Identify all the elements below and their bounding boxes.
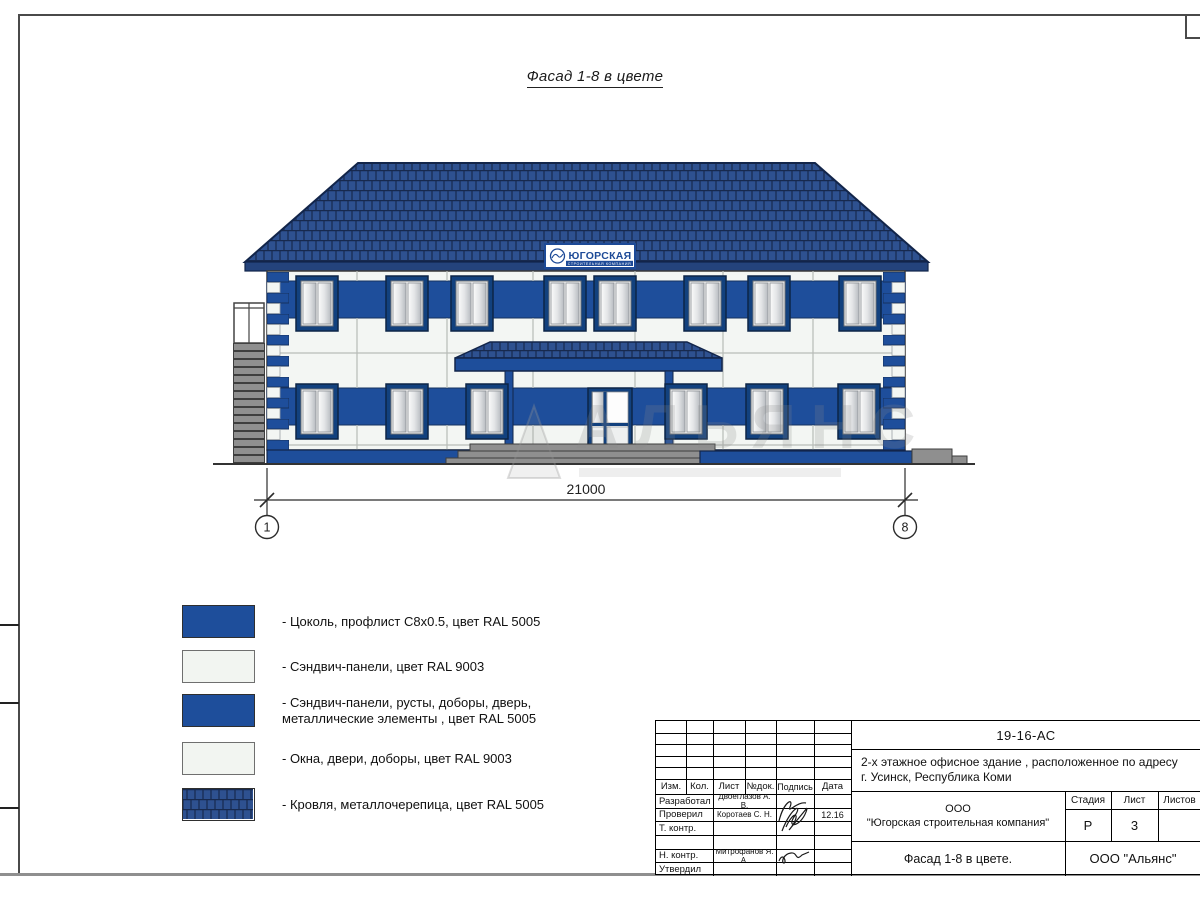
row-ncontrol-name: Митрофанов Я. А. xyxy=(714,849,775,862)
window xyxy=(594,276,636,331)
window xyxy=(296,384,338,439)
axis-marker-1: 1 xyxy=(256,516,279,539)
axis-marker-8: 8 xyxy=(894,516,917,539)
legend-row-roof: - Кровля, металлочерепица, цвет RAL 5005 xyxy=(182,788,544,821)
legend-label: - Цоколь, профлист С8х0.5, цвет RAL 5005 xyxy=(282,614,540,630)
sign-subtitle: СТРОИТЕЛЬНАЯ КОМПАНИЯ xyxy=(568,262,631,266)
legend-row-plinth: - Цоколь, профлист С8х0.5, цвет RAL 5005 xyxy=(182,605,540,638)
col-izm: Изм. xyxy=(656,779,686,794)
quoins-left xyxy=(267,272,289,450)
right-steps xyxy=(912,449,967,464)
contractor: ООО "Альянс" xyxy=(1065,841,1200,876)
svg-text:8: 8 xyxy=(902,521,909,535)
row-ncontrol-label: Н. контр. xyxy=(659,849,713,862)
legend-label: - Сэндвич-панели, цвет RAL 9003 xyxy=(282,659,484,675)
row-checked-date: 12.16 xyxy=(814,808,851,821)
signature-developed-checked xyxy=(776,791,814,835)
side-ramp xyxy=(700,451,912,464)
entrance-steps xyxy=(446,444,739,465)
stage-value: Р xyxy=(1065,809,1111,841)
window xyxy=(451,276,493,331)
sheet-value: 3 xyxy=(1111,809,1158,841)
window xyxy=(839,276,881,331)
window xyxy=(466,384,508,439)
svg-text:1: 1 xyxy=(264,521,271,535)
stage-label: Стадия xyxy=(1065,791,1111,809)
window xyxy=(386,384,428,439)
legend-row-rusts: - Сэндвич-панели, русты, доборы, дверь, … xyxy=(182,694,536,727)
sheet-label: Лист xyxy=(1111,791,1158,809)
col-list: Лист xyxy=(713,779,745,794)
legend-swatch-blue xyxy=(182,694,255,727)
legend-label: - Кровля, металлочерепица, цвет RAL 5005 xyxy=(282,797,544,813)
frame-left-tick-2 xyxy=(0,702,19,704)
row-checked-name: Коротаев С. Н. xyxy=(714,808,775,821)
window xyxy=(296,276,338,331)
col-kol: Кол. xyxy=(686,779,713,794)
window xyxy=(544,276,586,331)
window xyxy=(838,384,880,439)
design-company: ООО "Югорская строительная компания" xyxy=(851,791,1065,841)
dimension-label: 21000 xyxy=(567,481,606,497)
signature-ncontrol xyxy=(776,847,814,865)
entrance-door xyxy=(588,388,632,450)
window xyxy=(386,276,428,331)
window xyxy=(748,276,790,331)
row-developed-label: Разработал xyxy=(659,794,713,808)
sign-title: ЮГОРСКАЯ xyxy=(568,250,631,262)
legend-row-sandwich: - Сэндвич-панели, цвет RAL 9003 xyxy=(182,650,484,683)
sheet: { "sheet": { "title": "Фасад 1-8 в цвете… xyxy=(0,0,1200,900)
col-data: Дата xyxy=(814,779,851,794)
frame-left-tick-1 xyxy=(0,624,19,626)
legend-swatch-white xyxy=(182,650,255,683)
window xyxy=(665,384,707,439)
title-block: Изм. Кол. Лист №док. Подпись Дата Разраб… xyxy=(655,720,1200,875)
row-developed-name: Двоеглазов А. В. xyxy=(714,794,775,808)
doc-code: 19-16-АС xyxy=(851,721,1200,749)
row-checked-label: Проверил xyxy=(659,808,713,821)
band-lower xyxy=(267,388,905,425)
legend-label: - Окна, двери, доборы, цвет RAL 9003 xyxy=(282,751,512,767)
sheets-value xyxy=(1158,809,1200,841)
window xyxy=(684,276,726,331)
sheets-label: Листов xyxy=(1158,791,1200,809)
row-tcontrol-label: Т. контр. xyxy=(659,821,713,835)
legend-swatch-blue xyxy=(182,605,255,638)
legend-row-windows: - Окна, двери, доборы, цвет RAL 9003 xyxy=(182,742,512,775)
legend-swatch-roof xyxy=(182,788,255,821)
window xyxy=(746,384,788,439)
legend-label: - Сэндвич-панели, русты, доборы, дверь, … xyxy=(282,695,536,727)
row-approved-label: Утвердил xyxy=(659,862,713,876)
legend-swatch-white xyxy=(182,742,255,775)
col-ndoc: №док. xyxy=(745,779,776,794)
left-stair xyxy=(233,303,265,464)
facade-sign: ЮГОРСКАЯ СТРОИТЕЛЬНАЯ КОМПАНИЯ xyxy=(545,244,635,268)
quoins-right xyxy=(883,272,905,450)
drawing-name: Фасад 1-8 в цвете. xyxy=(851,841,1065,876)
object-description: 2-х этажное офисное здание , расположенн… xyxy=(861,750,1199,790)
facade-drawing: ЮГОРСКАЯ СТРОИТЕЛЬНАЯ КОМПАНИЯ 21000 1 8 xyxy=(0,0,1200,560)
frame-left-tick-3 xyxy=(0,807,19,809)
